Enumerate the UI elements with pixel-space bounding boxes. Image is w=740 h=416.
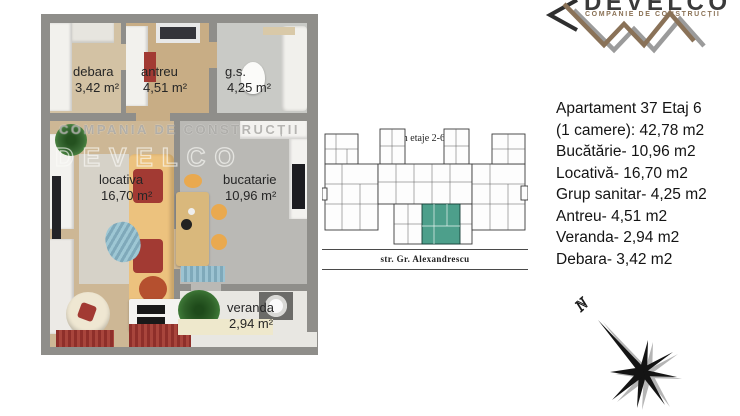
room-name: veranda xyxy=(227,300,274,315)
shelf xyxy=(72,23,114,43)
detail-line: Locativă- 16,70 m2 xyxy=(556,163,736,185)
room-area: 4,51 m² xyxy=(143,80,187,96)
site-plan-svg xyxy=(322,126,528,248)
doorway xyxy=(136,113,170,121)
room-name: bucatarie xyxy=(223,172,276,187)
detail-line: Antreu- 4,51 m2 xyxy=(556,206,736,228)
label-debara: debara 3,42 m² xyxy=(73,64,119,96)
detail-line: Bucătărie- 10,96 m2 xyxy=(556,141,736,163)
room-name: antreu xyxy=(141,64,178,79)
compass-svg: N xyxy=(573,290,711,416)
site-plan xyxy=(322,126,528,248)
bowl xyxy=(188,208,195,215)
veranda-step xyxy=(297,332,317,347)
label-locativa: locativa 16,70 m² xyxy=(99,172,152,204)
doorway xyxy=(209,42,217,68)
develco-logo: DEVELCO COMPANIE DE CONSTRUCȚII xyxy=(540,0,740,60)
room-area: 16,70 m² xyxy=(101,188,152,204)
detail-line: Apartament 37 Etaj 6 xyxy=(556,98,736,120)
detail-line: Veranda- 2,94 m2 xyxy=(556,227,736,249)
kettle xyxy=(181,219,192,230)
detail-line: Grup sanitar- 4,25 m2 xyxy=(556,184,736,206)
room-area: 2,94 m² xyxy=(229,316,274,332)
console-screen xyxy=(137,305,165,314)
detail-line: Debara- 3,42 m2 xyxy=(556,249,736,271)
floorplan-3d: COMPANIA DE CONSTRUCȚII DEVELCO debara 3… xyxy=(41,14,318,355)
apartment-details: Apartament 37 Etaj 6 (1 camere): 42,78 m… xyxy=(556,98,736,270)
room-area: 3,42 m² xyxy=(75,80,119,96)
label-veranda: veranda 2,94 m² xyxy=(227,300,274,332)
label-gs: g.s. 4,25 m² xyxy=(225,64,271,96)
street-label: str. Gr. Alexandrescu xyxy=(322,249,528,270)
chair xyxy=(184,174,202,188)
label-bucatarie: bucatarie 10,96 m² xyxy=(223,172,276,204)
striped-rug-blue xyxy=(181,266,225,282)
watermark-develco: DEVELCO xyxy=(55,142,244,173)
cooktop xyxy=(292,164,305,209)
room-name: g.s. xyxy=(225,64,246,79)
room-area: 4,25 m² xyxy=(227,80,271,96)
compass-rose: N xyxy=(573,290,711,416)
wardrobe xyxy=(50,23,72,111)
window xyxy=(156,23,200,43)
striped-rug xyxy=(56,330,114,347)
chair xyxy=(211,204,227,220)
room-name: locativa xyxy=(99,172,143,187)
bathtub xyxy=(281,26,307,111)
towel-rack xyxy=(263,27,295,35)
tv-screen xyxy=(52,176,61,242)
label-antreu: antreu 4,51 m² xyxy=(141,64,187,96)
room-area: 10,96 m² xyxy=(225,188,276,204)
compass-star xyxy=(598,320,677,408)
logo-tagline: COMPANIE DE CONSTRUCȚII xyxy=(585,11,740,18)
dining-table xyxy=(176,192,209,266)
highlighted-apartment xyxy=(422,204,460,244)
apartment-listing-image: COMPANIA DE CONSTRUCȚII DEVELCO debara 3… xyxy=(0,0,740,416)
chair xyxy=(211,234,227,250)
room-name: debara xyxy=(73,64,113,79)
watermark-company: COMPANIA DE CONSTRUCȚII xyxy=(41,122,318,137)
detail-line: (1 camere): 42,78 m2 xyxy=(556,120,736,142)
compass-north-label: N xyxy=(572,294,593,315)
